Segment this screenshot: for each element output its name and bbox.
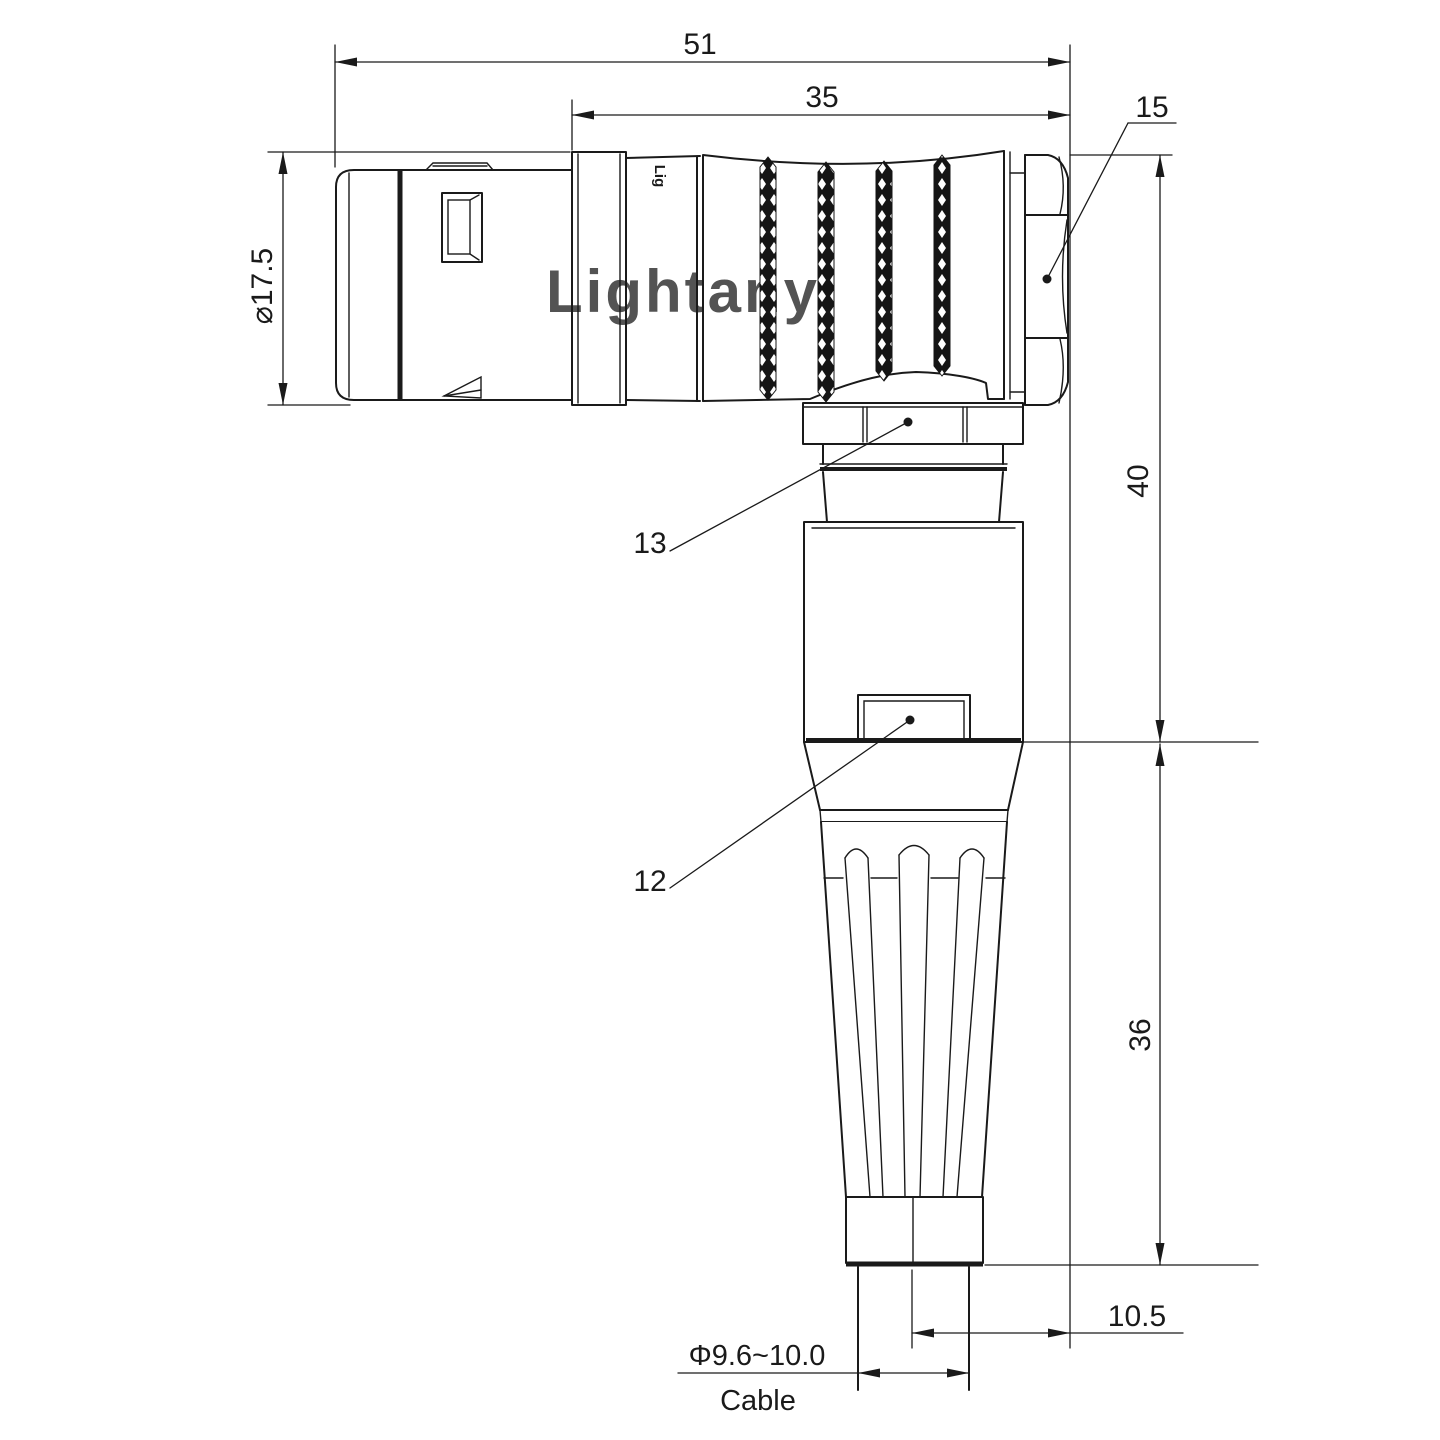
knurl-strip <box>760 157 776 400</box>
spacer-ring <box>1010 155 1025 405</box>
dim-lower-height: 36 <box>1124 744 1165 1265</box>
knurl-strip <box>934 155 950 376</box>
dim-label-diameter: ⌀17.5 <box>246 248 279 324</box>
dim-cable-diameter: Φ9.6~10.0 Cable <box>678 1340 969 1417</box>
technical-drawing-page: Lightany <box>0 0 1440 1440</box>
dim-label-10-5: 10.5 <box>1108 1300 1166 1333</box>
neck-section <box>820 444 1007 522</box>
dim-label-40: 40 <box>1122 464 1155 497</box>
callout-label-12: 12 <box>633 865 666 898</box>
callout-label-13: 13 <box>633 527 666 560</box>
dim-label-51: 51 <box>683 28 716 61</box>
callout-collar: 13 <box>633 418 912 561</box>
dim-boot-length: 35 <box>572 81 1070 120</box>
collar-nut <box>803 403 1023 444</box>
strain-relief-fingers <box>821 822 1007 1197</box>
cable-ferrule <box>846 1197 983 1264</box>
watermark-text: Lightany <box>546 258 820 325</box>
dim-plug-diameter: ⌀17.5 <box>246 152 288 405</box>
elbow-body-assembly <box>803 403 1023 1390</box>
knurl-strip <box>818 162 834 402</box>
knurl-strip <box>876 161 892 381</box>
callout-label-15: 15 <box>1135 91 1168 124</box>
engraved-brand-text: Lig <box>651 165 668 188</box>
dim-axis-offset: 10.5 <box>912 1300 1183 1338</box>
dim-upper-height: 40 <box>1122 155 1165 742</box>
dim-label-35: 35 <box>805 81 838 114</box>
strain-relief-shoulder <box>804 742 1023 822</box>
dim-label-36: 36 <box>1124 1018 1157 1051</box>
dim-label-cable-diameter: Φ9.6~10.0 <box>689 1340 826 1372</box>
connector-drawing-svg: Lightany <box>0 0 1440 1440</box>
cable-label: Cable <box>720 1385 796 1417</box>
dim-total-length: 51 <box>335 28 1070 67</box>
connector-body <box>804 522 1023 742</box>
